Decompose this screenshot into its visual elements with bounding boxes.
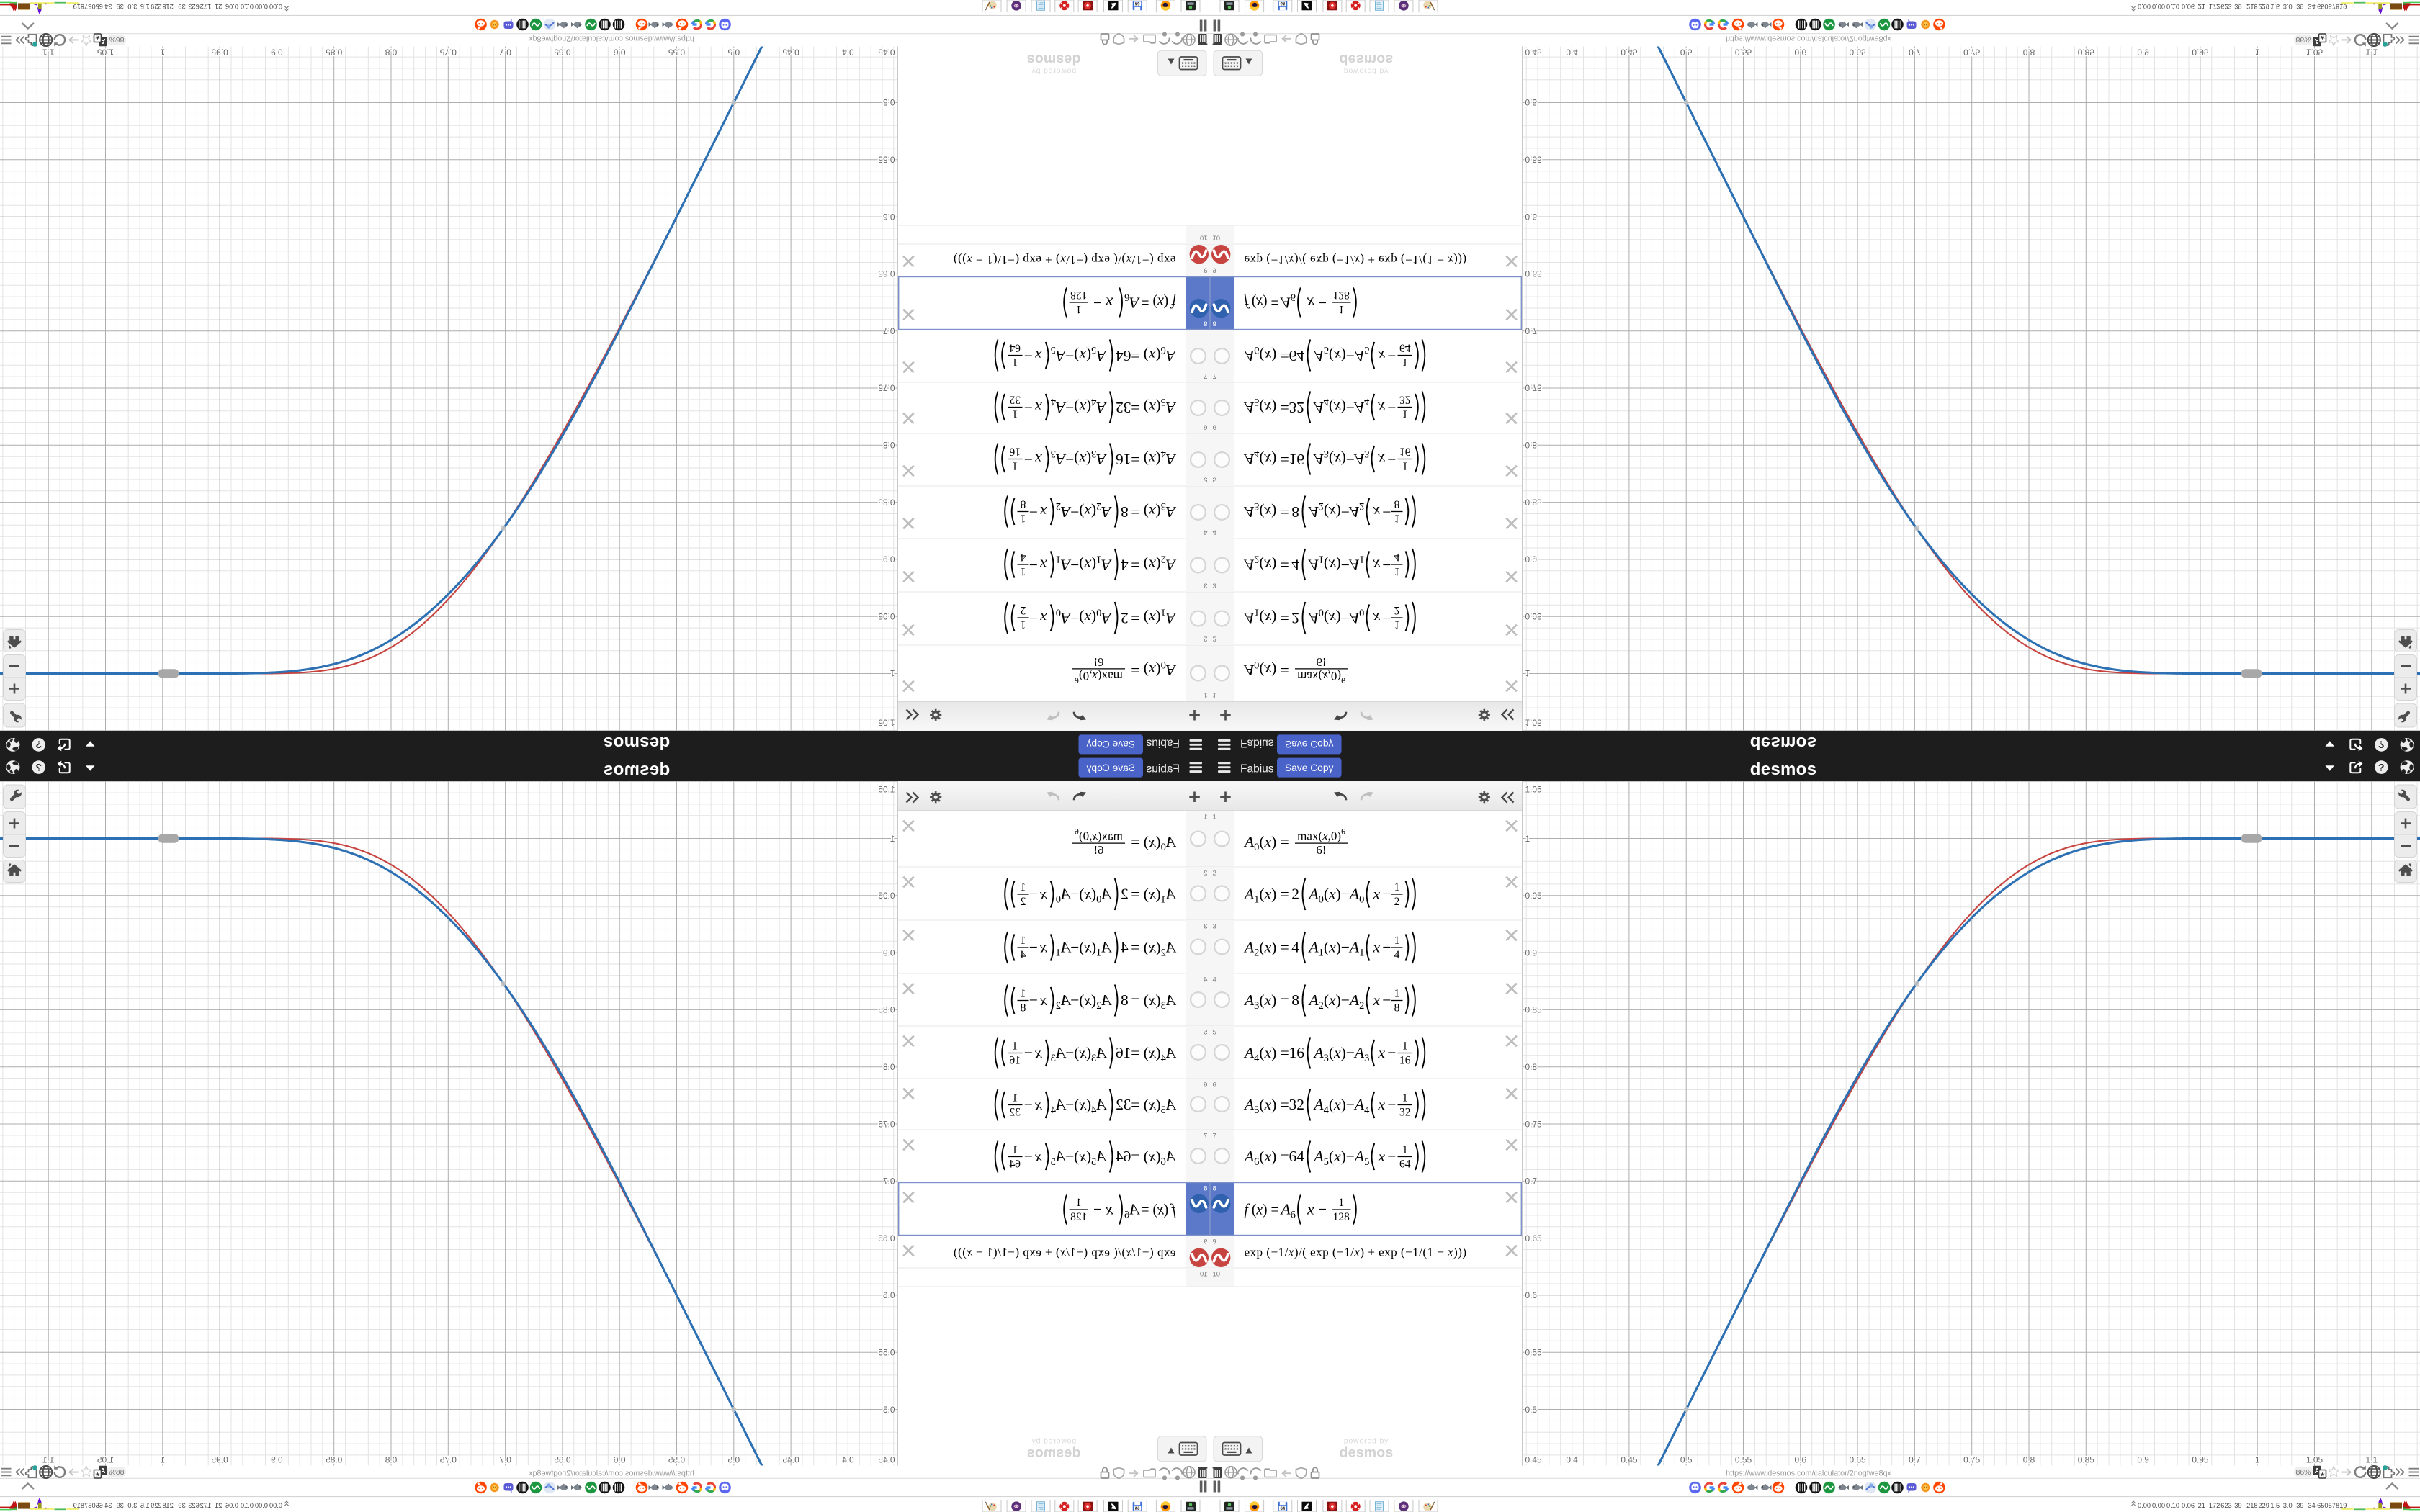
svg-text:0.85: 0.85 — [2078, 1455, 2095, 1465]
svg-text:1: 1 — [2255, 1455, 2260, 1465]
svg-text:8: 8 — [1291, 991, 1299, 1009]
svg-text:1: 1 — [1525, 834, 1531, 844]
svg-text:A0(x)−A0: A0(x)−A0 — [1308, 886, 1365, 906]
svg-text:16: 16 — [1289, 1044, 1305, 1061]
svg-text:x: x — [1378, 1044, 1386, 1061]
svg-text:−: − — [1382, 886, 1391, 903]
svg-text:0.5: 0.5 — [1680, 1455, 1693, 1465]
svg-text:9: 9 — [1213, 1238, 1216, 1246]
svg-text:64: 64 — [1289, 1148, 1305, 1165]
svg-text:?: ? — [2378, 762, 2385, 773]
svg-text:2: 2 — [1394, 896, 1400, 908]
svg-text:https://www.desmos.com/calcula: https://www.desmos.com/calculator/2nogfw… — [1726, 1469, 1891, 1477]
svg-text:0.65: 0.65 — [1525, 1233, 1543, 1243]
svg-text:0.8: 0.8 — [1525, 1062, 1538, 1072]
svg-text:4: 4 — [1394, 949, 1400, 961]
svg-text:desmos: desmos — [1750, 760, 1817, 779]
svg-text:−: − — [1387, 1148, 1396, 1165]
svg-text:0.95: 0.95 — [1525, 891, 1543, 901]
svg-text:1: 1 — [1402, 1144, 1408, 1156]
svg-text:A5(x)−A5: A5(x)−A5 — [1313, 1148, 1370, 1168]
svg-text:0.10: 0.10 — [2166, 1502, 2179, 1509]
svg-text:Fabius: Fabius — [1240, 763, 1274, 775]
svg-text:2: 2 — [1291, 886, 1299, 903]
svg-text:8: 8 — [1394, 1002, 1400, 1014]
svg-text:★: ★ — [2320, 1471, 2326, 1478]
svg-text:A5(x) =: A5(x) = — [1243, 1096, 1289, 1116]
svg-text:0.00: 0.00 — [2138, 1502, 2151, 1509]
svg-text:0.55: 0.55 — [1525, 1348, 1543, 1358]
svg-text:64: 64 — [1280, 1507, 1285, 1511]
svg-text:A1(x)−A1: A1(x)−A1 — [1308, 939, 1365, 959]
svg-text:0.75: 0.75 — [1525, 1119, 1543, 1129]
svg-text:7: 7 — [1213, 1133, 1216, 1140]
svg-text:10: 10 — [1213, 1271, 1221, 1279]
svg-text:623: 623 — [2220, 1502, 2232, 1509]
svg-text:229: 229 — [2258, 1502, 2269, 1509]
svg-text:0.6: 0.6 — [1525, 1290, 1538, 1300]
svg-text:A1(x) =: A1(x) = — [1243, 886, 1289, 906]
svg-text:x: x — [1307, 1201, 1314, 1218]
svg-text:f (x) =: f (x) = — [1245, 1201, 1279, 1218]
svg-text:86%: 86% — [2295, 1468, 2311, 1477]
svg-text:39: 39 — [2234, 1502, 2241, 1509]
svg-text:0.5: 0.5 — [1525, 1405, 1538, 1415]
svg-text:0.8: 0.8 — [2023, 1455, 2035, 1465]
svg-text:−: − — [1318, 1201, 1327, 1218]
svg-text:0.45: 0.45 — [1621, 1455, 1638, 1465]
svg-text:x: x — [1373, 886, 1381, 903]
svg-text:0.9: 0.9 — [1525, 948, 1538, 958]
svg-text:5: 5 — [1213, 1029, 1216, 1037]
svg-text:x: x — [1378, 1096, 1386, 1113]
svg-text:0.6: 0.6 — [1795, 1455, 1807, 1465]
svg-text:0.7: 0.7 — [1909, 1455, 1921, 1465]
svg-text:−: − — [1382, 991, 1391, 1009]
svg-text:1: 1 — [1394, 988, 1400, 1000]
svg-text:A0(x) =: A0(x) = — [1243, 833, 1289, 853]
svg-text:A2(x)−A2: A2(x)−A2 — [1308, 991, 1365, 1012]
svg-text:65057819: 65057819 — [2317, 1502, 2347, 1509]
svg-text:1: 1 — [1394, 935, 1400, 947]
svg-text:4: 4 — [1213, 976, 1216, 984]
svg-text:x: x — [1373, 939, 1381, 956]
svg-text:1: 1 — [1402, 1092, 1408, 1104]
svg-text:A6(x) =: A6(x) = — [1243, 1148, 1289, 1168]
svg-text:3: 3 — [1213, 923, 1216, 931]
svg-text:A3(x)−A3: A3(x)−A3 — [1313, 1044, 1370, 1064]
svg-text:1.5: 1.5 — [2270, 1502, 2280, 1509]
svg-text:A2(x) =: A2(x) = — [1243, 939, 1289, 959]
svg-text:16: 16 — [1399, 1055, 1411, 1067]
svg-text:6: 6 — [1213, 1081, 1216, 1089]
svg-text:0.55: 0.55 — [1735, 1455, 1752, 1465]
svg-text:−: − — [1382, 939, 1391, 956]
svg-text:3.0: 3.0 — [2283, 1502, 2293, 1509]
svg-text:1: 1 — [1338, 1197, 1344, 1209]
svg-text:−: − — [1387, 1044, 1396, 1061]
svg-text:218: 218 — [2246, 1502, 2258, 1509]
svg-text:21: 21 — [2198, 1502, 2205, 1509]
svg-text:6!: 6! — [1316, 843, 1326, 857]
svg-text:1: 1 — [1402, 1040, 1408, 1053]
svg-text:exp (−1/x)/( exp (−1/x) + exp: exp (−1/x)/( exp (−1/x) + exp (−1/(1 − x… — [1245, 1246, 1467, 1259]
svg-text:0.85: 0.85 — [1525, 1005, 1543, 1015]
svg-text:A4(x)−A4: A4(x)−A4 — [1313, 1096, 1371, 1116]
svg-text:2: 2 — [1213, 870, 1216, 878]
svg-text:A4(x) =: A4(x) = — [1243, 1044, 1289, 1064]
svg-text:39: 39 — [2296, 1502, 2303, 1509]
svg-text:0.9: 0.9 — [2137, 1455, 2149, 1465]
svg-text:desmos: desmos — [1340, 1445, 1394, 1461]
svg-text:−: − — [1387, 1096, 1396, 1113]
svg-text:0.65: 0.65 — [1850, 1455, 1867, 1465]
svg-text:1.05: 1.05 — [2306, 1455, 2323, 1465]
svg-text:1: 1 — [1394, 881, 1400, 894]
svg-text:1.05: 1.05 — [1525, 785, 1543, 795]
svg-text:0.00: 0.00 — [2152, 1502, 2165, 1509]
svg-text:128: 128 — [1333, 1211, 1350, 1223]
svg-text:0.4: 0.4 — [1566, 1455, 1578, 1465]
svg-text:x: x — [1373, 991, 1381, 1009]
svg-text:172: 172 — [2209, 1502, 2220, 1509]
svg-text:A3(x) =: A3(x) = — [1243, 991, 1289, 1012]
svg-text:0.75: 0.75 — [1963, 1455, 1981, 1465]
svg-text:0.7: 0.7 — [1525, 1176, 1538, 1187]
svg-text:32: 32 — [1399, 1107, 1411, 1119]
svg-text:1: 1 — [1213, 814, 1216, 822]
svg-text:Save Copy: Save Copy — [1285, 762, 1334, 773]
svg-text:x: x — [1378, 1148, 1386, 1165]
svg-text:4: 4 — [1291, 939, 1299, 956]
svg-text:0.45: 0.45 — [1525, 1455, 1543, 1465]
svg-text:0.95: 0.95 — [2192, 1455, 2209, 1465]
svg-text:64: 64 — [1399, 1158, 1411, 1171]
svg-text:34: 34 — [2308, 1502, 2315, 1509]
svg-text:32: 32 — [1289, 1096, 1305, 1113]
svg-text:1.1: 1.1 — [2366, 1455, 2378, 1465]
svg-text:max(x,0)6: max(x,0)6 — [1297, 828, 1345, 843]
svg-text:8: 8 — [1213, 1185, 1216, 1193]
svg-text:0.06: 0.06 — [2182, 1502, 2195, 1509]
